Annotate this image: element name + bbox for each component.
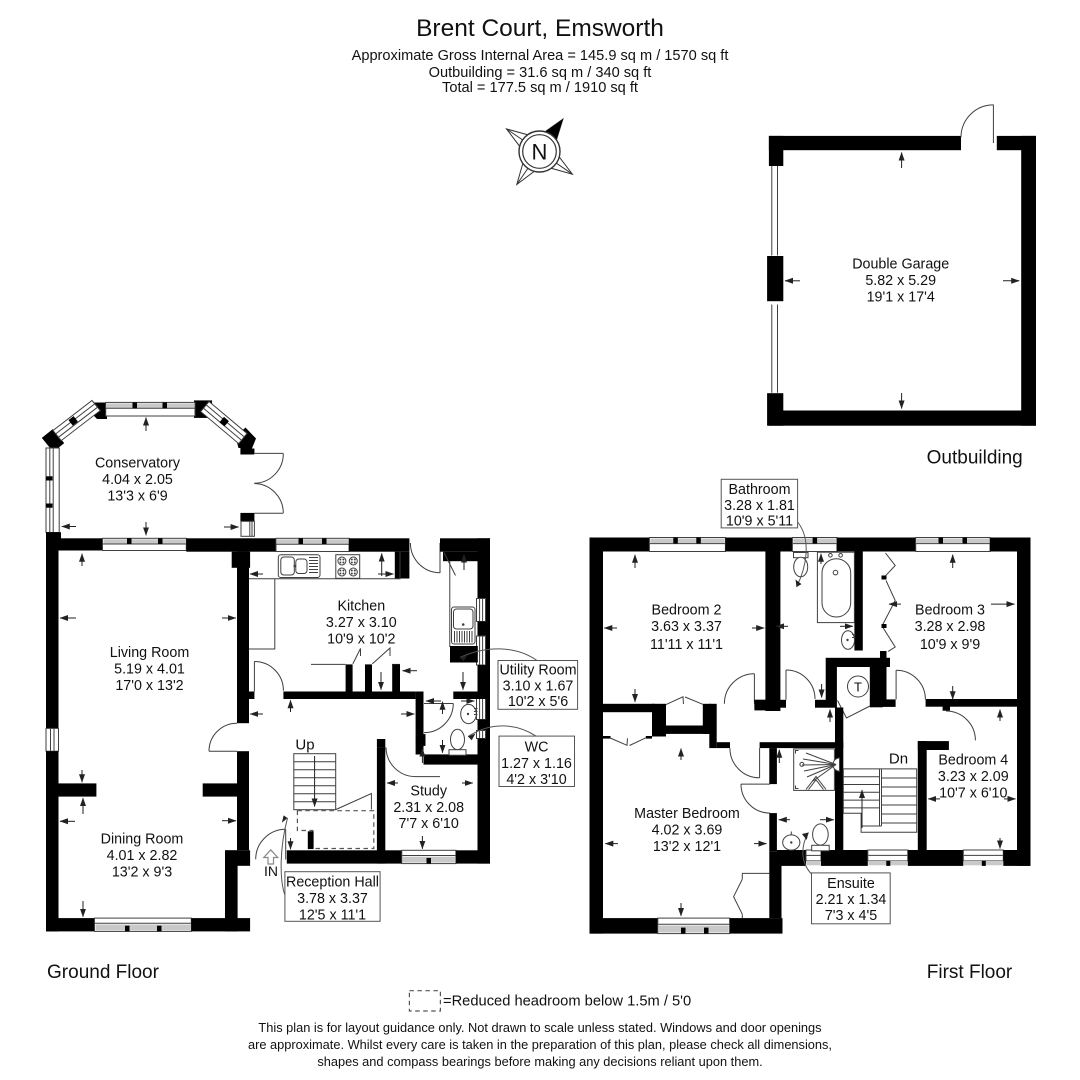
svg-text:19'1 x 17'4: 19'1 x 17'4 — [867, 289, 935, 305]
svg-text:N: N — [532, 140, 548, 165]
svg-text:5.82 x 5.29: 5.82 x 5.29 — [865, 273, 936, 289]
svg-text:Outbuilding = 31.6 sq m / 340: Outbuilding = 31.6 sq m / 340 sq ft — [429, 65, 652, 81]
svg-text:Master Bedroom: Master Bedroom — [634, 806, 740, 822]
svg-text:10'2 x 5'6: 10'2 x 5'6 — [508, 694, 568, 710]
svg-text:2.31 x 2.08: 2.31 x 2.08 — [393, 800, 464, 816]
svg-text:13'3 x 6'9: 13'3 x 6'9 — [107, 488, 167, 504]
svg-text:3.10 x 1.67: 3.10 x 1.67 — [503, 679, 574, 695]
svg-text:3.27 x 3.10: 3.27 x 3.10 — [326, 615, 397, 631]
svg-text:1.27 x 1.16: 1.27 x 1.16 — [501, 756, 572, 772]
svg-text:2.21 x 1.34: 2.21 x 1.34 — [816, 892, 887, 908]
svg-text:=Reduced headroom below 1.5m /: =Reduced headroom below 1.5m / 5'0 — [443, 994, 691, 1010]
svg-text:Bathroom: Bathroom — [729, 482, 791, 498]
svg-text:11'11 x 11'1: 11'11 x 11'1 — [650, 637, 723, 653]
svg-text:Total = 177.5 sq m / 1910 sq f: Total = 177.5 sq m / 1910 sq ft — [442, 80, 638, 96]
svg-text:Living Room: Living Room — [110, 645, 189, 661]
svg-text:Ensuite: Ensuite — [827, 876, 875, 892]
svg-text:Approximate Gross Internal Are: Approximate Gross Internal Area = 145.9 … — [352, 48, 729, 64]
svg-text:3.28 x 2.98: 3.28 x 2.98 — [915, 619, 986, 635]
svg-text:3.78 x 3.37: 3.78 x 3.37 — [297, 891, 368, 907]
svg-text:10'7 x 6'10: 10'7 x 6'10 — [939, 786, 1007, 802]
svg-text:13'2 x 9'3: 13'2 x 9'3 — [112, 864, 172, 880]
svg-text:7'7 x 6'10: 7'7 x 6'10 — [399, 816, 459, 832]
svg-text:First Floor: First Floor — [927, 962, 1013, 983]
svg-text:Bedroom 3: Bedroom 3 — [915, 603, 985, 619]
svg-text:WC: WC — [525, 740, 549, 756]
svg-text:13'2 x 12'1: 13'2 x 12'1 — [653, 839, 721, 855]
svg-text:10'9 x 9'9: 10'9 x 9'9 — [920, 637, 980, 653]
svg-text:This plan is for layout guidan: This plan is for layout guidance only. N… — [258, 1020, 821, 1035]
svg-text:12'5 x 11'1: 12'5 x 11'1 — [299, 908, 366, 924]
svg-text:Bedroom 4: Bedroom 4 — [938, 753, 1008, 769]
svg-text:10'9 x 5'11: 10'9 x 5'11 — [726, 514, 793, 530]
svg-text:7'3 x 4'5: 7'3 x 4'5 — [825, 908, 877, 924]
svg-text:17'0 x 13'2: 17'0 x 13'2 — [115, 678, 183, 694]
svg-text:shapes and compass bearings be: shapes and compass bearings before makin… — [317, 1054, 762, 1069]
svg-text:5.19 x 4.01: 5.19 x 4.01 — [114, 662, 185, 678]
svg-text:Double Garage: Double Garage — [852, 256, 949, 272]
svg-text:Utility Room: Utility Room — [499, 663, 576, 679]
svg-text:Ground Floor: Ground Floor — [47, 962, 160, 983]
svg-text:are approximate. Whilst every: are approximate. Whilst every care is ta… — [248, 1037, 832, 1052]
svg-text:Up: Up — [295, 737, 314, 754]
svg-text:4.01 x 2.82: 4.01 x 2.82 — [107, 848, 178, 864]
svg-text:Dining Room: Dining Room — [101, 832, 184, 848]
svg-text:3.23 x 2.09: 3.23 x 2.09 — [938, 769, 1009, 785]
svg-text:10'9 x 10'2: 10'9 x 10'2 — [327, 631, 395, 647]
svg-text:Outbuilding: Outbuilding — [927, 448, 1023, 469]
svg-text:4'2 x 3'10: 4'2 x 3'10 — [506, 772, 566, 788]
svg-text:IN: IN — [264, 863, 278, 879]
svg-text:4.02 x 3.69: 4.02 x 3.69 — [652, 823, 723, 839]
svg-text:T: T — [854, 680, 862, 695]
svg-text:Kitchen: Kitchen — [337, 599, 385, 615]
svg-text:3.28 x 1.81: 3.28 x 1.81 — [724, 498, 795, 514]
svg-text:4.04 x 2.05: 4.04 x 2.05 — [102, 472, 173, 488]
svg-text:Conservatory: Conservatory — [95, 456, 181, 472]
svg-text:Brent Court, Emsworth: Brent Court, Emsworth — [416, 15, 664, 42]
svg-text:3.63 x 3.37: 3.63 x 3.37 — [651, 619, 722, 635]
svg-text:Bedroom 2: Bedroom 2 — [652, 603, 722, 619]
svg-text:Reception Hall: Reception Hall — [286, 875, 379, 891]
svg-text:Dn: Dn — [889, 751, 908, 768]
svg-text:Study: Study — [410, 784, 447, 800]
